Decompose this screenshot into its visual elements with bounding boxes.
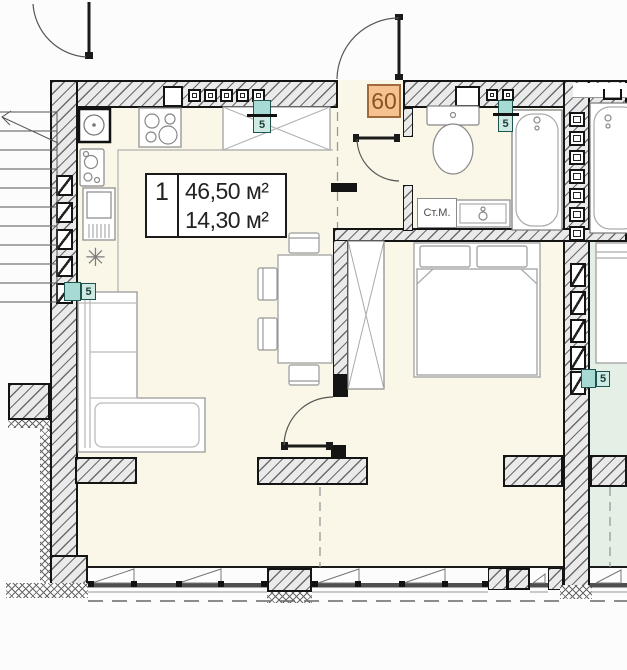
neighbor-bathtub [590,103,627,233]
dining-set [258,233,332,385]
sofa [78,292,205,452]
riser-marker-label: 5 [498,115,513,132]
window-sash [533,574,545,583]
toilet-bowl [433,124,473,174]
pillow [477,246,527,267]
riser-marker [64,282,81,301]
riser-marker-label: 5 [596,371,610,387]
dining-table [278,255,332,363]
bathroom-fixtures [427,103,627,233]
bedroom-door [281,397,333,450]
window-sash [179,569,221,583]
window-sash [318,569,359,583]
riser-marker-label: 5 [253,116,271,133]
window-sash [596,570,621,583]
washing-machine: Ст.М. [417,198,457,228]
unit-number-badge: 60 [367,84,401,118]
floor-plan: 60 1 46,50 м² 14,30 м² Ст.М. ✳ 5 5 5 5 [0,0,627,670]
pillow [420,246,470,267]
area-row-index: 1 [147,175,179,236]
riser-marker-bar [247,114,277,117]
riser-marker [581,369,596,388]
windows [88,567,627,601]
fridge-icon: ✳ [85,243,106,273]
blanket [417,269,537,375]
entrance-door [337,14,403,80]
window-sash [404,569,445,583]
living-area-value: 14,30 м² [185,206,285,235]
chair [289,365,319,385]
bathroom-door [353,134,400,181]
chair [258,318,277,350]
window-sash [92,569,134,583]
chair [258,268,277,300]
total-area-value: 46,50 м² [185,177,285,206]
staircase-outside [0,111,58,302]
riser-marker-bar [493,113,519,116]
building-entry-door [33,2,93,59]
wardrobe [348,241,384,389]
chair [289,233,319,253]
area-table: 1 46,50 м² 14,30 м² [145,173,287,238]
bathtub [512,110,562,230]
riser-marker-label: 5 [81,283,96,300]
dishwasher [83,188,115,240]
toilet-tank [427,106,479,125]
neighbor-bed [596,243,627,363]
bed [414,243,540,377]
top-right-niche-bracket [604,89,621,99]
